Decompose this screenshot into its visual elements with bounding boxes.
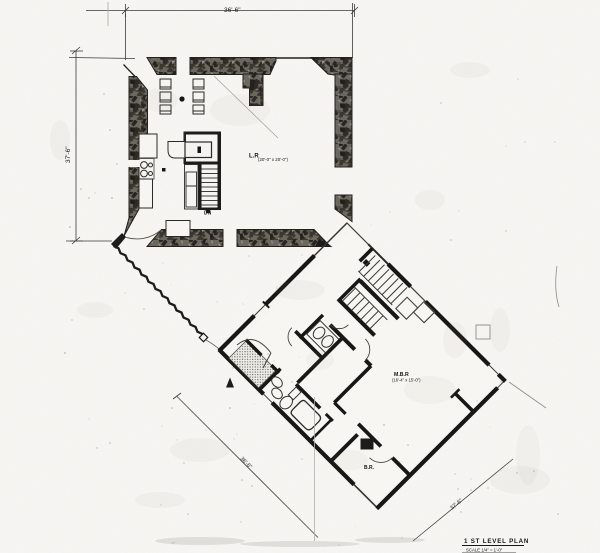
svg-text:1 ST LEVEL PLAN: 1 ST LEVEL PLAN	[464, 538, 529, 545]
svg-text:(20'-0" x 20'-0"): (20'-0" x 20'-0")	[258, 157, 288, 162]
svg-text:36'-6": 36'-6"	[224, 7, 241, 14]
svg-text:SCALE 1/4" = 1'-0": SCALE 1/4" = 1'-0"	[466, 548, 503, 553]
